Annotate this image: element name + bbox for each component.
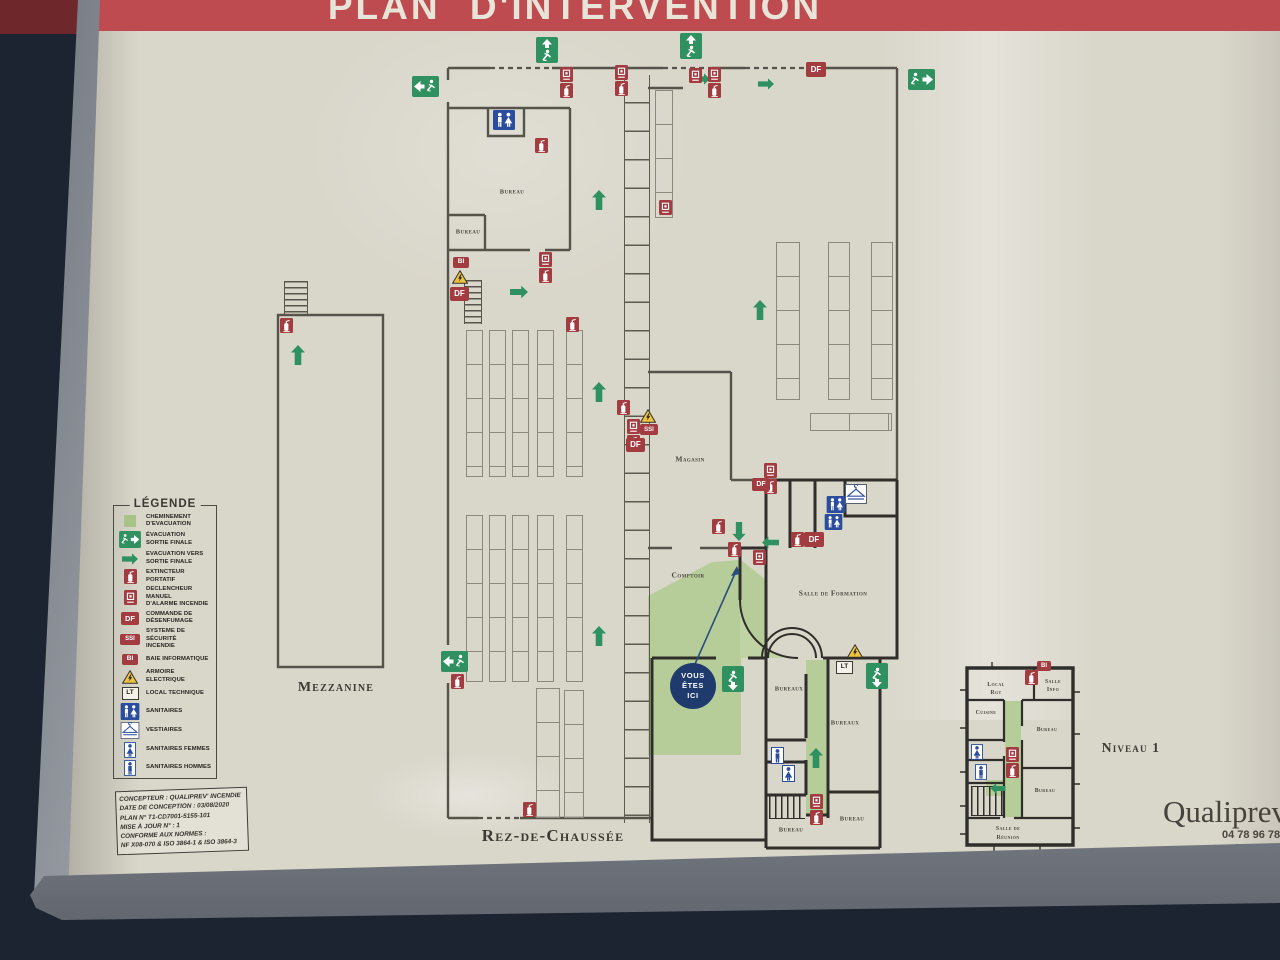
restroom-men-icon [975, 764, 987, 780]
storage-rack [489, 515, 506, 682]
extinguisher-icon [566, 317, 579, 332]
extinguisher-icon [615, 81, 628, 96]
legend-restroom-icon [118, 703, 142, 720]
legend-evacuation-path-swatch [118, 515, 142, 527]
storage-rack [871, 242, 893, 400]
legend-item-label: EVACUATION VERS SORTIE FINALE [146, 551, 203, 566]
evacuation-arrow-icon [762, 536, 779, 549]
stairs-icon [284, 281, 308, 315]
storage-rack [828, 242, 850, 400]
room-label-local-rgt: Local [987, 682, 1004, 688]
exit-sign-icon [722, 664, 744, 694]
niveau1-label: Niveau 1 [1102, 740, 1160, 756]
glare [880, 0, 1100, 720]
df-icon: DF [806, 62, 826, 77]
fire-alarm-icon [689, 68, 702, 83]
storage-rack [566, 515, 583, 682]
room-label-bureau: Bureau [1035, 788, 1056, 794]
legend-item-label: SANITAIRES [146, 708, 182, 715]
legend-item: ARMOIRE ELECTRIQUE [118, 669, 213, 684]
legend-restroom-women-icon [118, 742, 142, 758]
storage-shelf [810, 413, 892, 431]
legend-title: LÉGENDE [130, 498, 201, 510]
floor-label: Rez-de-Chaussée [482, 826, 625, 846]
legend-lt-icon: LT [118, 687, 142, 700]
legend-item: DECLENCHEUR MANUEL D'ALARME INCENDIE [118, 586, 213, 608]
evacuation-arrow-icon [991, 783, 1006, 795]
extinguisher-icon [280, 318, 293, 333]
extinguisher-icon [539, 268, 552, 283]
extinguisher-icon [728, 542, 741, 557]
storage-rack [536, 688, 560, 818]
storage-rack [466, 515, 483, 682]
fire-alarm-icon [708, 67, 721, 82]
restroom-icon [826, 496, 846, 513]
legend-item: CHEMINEMENT D'EVACUATION [118, 514, 213, 529]
alarm-extinguisher-pair [810, 794, 823, 825]
room-label-local-rgt: Rgt [990, 690, 1001, 696]
exit-sign-icon [680, 33, 702, 59]
restroom-men-icon [771, 747, 784, 764]
legend-item: VESTIAIRES [118, 722, 213, 739]
extinguisher-icon [535, 138, 548, 153]
alarm-extinguisher-pair [708, 67, 721, 98]
room-label-bureau: Bureau [1037, 727, 1058, 733]
legend-item-label: SANITAIRES FEMMES [146, 746, 210, 753]
fire-alarm-icon [659, 200, 672, 215]
electric-warning-icon [847, 644, 863, 658]
fire-alarm-icon [560, 67, 573, 82]
stairs-icon [769, 795, 805, 819]
room-label-salle-info: Salle [1045, 679, 1061, 685]
alarm-extinguisher-pair [539, 252, 552, 283]
exit-sign-icon [536, 37, 558, 63]
legend-item: DF COMMANDE DE DÉSENFUMAGE [118, 611, 213, 626]
legend-item: EXTINCTEUR PORTATIF [118, 569, 213, 584]
cloakroom-icon [845, 484, 867, 504]
storage-rack [537, 330, 554, 477]
legend-item: SANITAIRES [118, 703, 213, 720]
evacuation-arrow-icon [758, 78, 774, 90]
legend-fire-alarm-icon [118, 590, 142, 605]
legend-extinguisher-icon [118, 569, 142, 584]
legend-item: ÉVACUATION SORTIE FINALE [118, 531, 213, 548]
evacuation-arrow-icon [592, 382, 606, 402]
lt-icon: LT [836, 661, 853, 674]
extinguisher-icon [791, 532, 804, 547]
alarm-extinguisher-pair [560, 67, 573, 98]
legend-item-label: DECLENCHEUR MANUEL D'ALARME INCENDIE [146, 586, 213, 608]
legend-restroom-men-icon [118, 760, 142, 776]
ssi-icon: SSI [640, 424, 658, 435]
room-label-salle-de-reunion: Salle de [996, 826, 1020, 832]
restroom-women-icon [971, 744, 983, 760]
alarm-extinguisher-pair [615, 65, 628, 96]
legend-item: SANITAIRES FEMMES [118, 742, 213, 758]
evacuation-arrow-icon [753, 300, 767, 320]
legend-item: LT LOCAL TECHNIQUE [118, 686, 213, 700]
legend-item-label: SYSTEME DE SÉCURITÉ INCENDIE [146, 628, 213, 650]
photo-background: PLAN D'INTERVENTION [0, 0, 1280, 960]
legend-electric-warning-icon [118, 670, 142, 684]
exit-sign-icon [908, 69, 935, 90]
storage-rack [776, 242, 800, 400]
you-are-here-line: ICI [687, 691, 698, 701]
fire-alarm-icon [764, 463, 777, 478]
room-label-bureau: Bureau [840, 816, 865, 823]
room-label-bureau: Bureau [500, 189, 525, 196]
legend-df-icon: DF [118, 612, 142, 625]
storage-rack [566, 330, 583, 477]
legend-item-label: ARMOIRE ELECTRIQUE [146, 669, 213, 684]
extinguisher-icon [1006, 763, 1019, 778]
storage-rack [655, 90, 673, 218]
you-are-here-badge: VOUS ÊTES ICI [670, 663, 716, 709]
room-label-bureau: Bureau [456, 229, 481, 236]
legend-item-label: SANITAIRES HOMMES [146, 764, 211, 771]
legend-item: SSI SYSTEME DE SÉCURITÉ INCENDIE [118, 628, 213, 650]
legend-item-label: LOCAL TECHNIQUE [146, 690, 204, 697]
mezzanine-label: Mezzanine [298, 680, 374, 696]
storage-rack [466, 330, 483, 477]
fire-alarm-icon [539, 252, 552, 267]
fire-alarm-icon [1006, 747, 1019, 762]
room-label-bureaux: Bureaux [775, 686, 804, 693]
evacuation-arrow-icon [809, 748, 823, 768]
df-icon: DF [626, 438, 645, 452]
legend-item: EVACUATION VERS SORTIE FINALE [118, 551, 213, 567]
exit-sign-icon [412, 76, 439, 97]
legend-cloakroom-icon [118, 722, 142, 739]
room-label-salle-info: Info [1047, 687, 1059, 693]
restroom-icon [493, 110, 515, 130]
you-are-here-line: VOUS [681, 671, 705, 681]
legend-item-label: BAIE INFORMATIQUE [146, 656, 208, 663]
room-label-bureau: Bureau [779, 827, 804, 834]
bi-icon: BI [453, 257, 469, 268]
evacuation-arrow-icon [291, 345, 305, 365]
legend-ssi-icon: SSI [118, 634, 142, 645]
storage-rack [512, 330, 529, 477]
legend-item: SANITAIRES HOMMES [118, 760, 213, 776]
extinguisher-icon [523, 802, 536, 817]
df-icon: DF [450, 287, 469, 301]
evacuation-arrow-icon [732, 522, 746, 541]
fire-alarm-icon [810, 794, 823, 809]
extinguisher-icon [712, 519, 725, 534]
room-label-cuisine: Cuisine [976, 710, 997, 716]
restroom-icon [824, 514, 843, 530]
electric-warning-icon [640, 409, 656, 423]
room-label-salle-de-formation: Salle de Formation [799, 589, 868, 598]
exit-sign-icon [866, 661, 888, 691]
legend-green-arrow-icon [118, 551, 142, 567]
brand-phone: 04 78 96 78 1 [1222, 829, 1280, 841]
evacuation-arrow-icon [510, 285, 528, 299]
room-label-comptoir: Comptoir [672, 571, 705, 580]
you-are-here-line: ÊTES [682, 681, 704, 691]
intervention-plan-board: PLAN D'INTERVENTION [0, 0, 1280, 960]
storage-rack [512, 515, 529, 682]
legend-item-label: EXTINCTEUR PORTATIF [146, 569, 185, 584]
storage-rack [537, 515, 554, 682]
room-label-magasin: Magasin [675, 455, 704, 464]
extinguisher-icon [617, 400, 630, 415]
room-label-bureaux: Bureaux [831, 720, 860, 727]
brand-logo: Qualiprev [1163, 794, 1280, 830]
fire-alarm-icon [627, 419, 640, 434]
extinguisher-icon [708, 83, 721, 98]
exit-sign-icon [441, 651, 468, 672]
df-icon: DF [752, 478, 770, 491]
extinguisher-icon [451, 674, 464, 689]
extinguisher-icon [560, 83, 573, 98]
shadow [1220, 0, 1280, 900]
fire-alarm-icon [615, 65, 628, 80]
fire-alarm-icon [753, 550, 766, 565]
bi-icon: BI [1037, 661, 1051, 671]
evacuation-arrow-icon [592, 626, 606, 646]
extinguisher-icon [1025, 670, 1038, 685]
restroom-women-icon [782, 765, 795, 782]
legend-exit-sign-icon [118, 531, 142, 548]
legend-item: BI BAIE INFORMATIQUE [118, 653, 213, 667]
legend-item-label: VESTIAIRES [146, 727, 182, 734]
room-label-salle-de-reunion: Réunion [997, 835, 1020, 841]
storage-rack [564, 690, 584, 818]
page-title: PLAN D'INTERVENTION [328, 0, 822, 28]
plan-info-box: CONCEPTEUR : QUALIPREV' INCENDIE DATE DE… [115, 787, 249, 855]
legend: LÉGENDE CHEMINEMENT D'EVACUATION ÉVACUAT… [113, 505, 217, 779]
alarm-extinguisher-pair [1006, 747, 1019, 778]
electric-warning-icon [452, 270, 468, 284]
legend-body: CHEMINEMENT D'EVACUATION ÉVACUATION SORT… [118, 514, 213, 776]
extinguisher-icon [810, 810, 823, 825]
storage-rack [489, 330, 506, 477]
legend-item-label: ÉVACUATION SORTIE FINALE [146, 532, 192, 547]
df-icon: DF [804, 532, 824, 547]
legend-item-label: COMMANDE DE DÉSENFUMAGE [146, 611, 193, 626]
evacuation-arrow-icon [592, 190, 606, 210]
legend-item-label: CHEMINEMENT D'EVACUATION [146, 514, 191, 529]
title-banner: PLAN D'INTERVENTION [0, 0, 1280, 31]
legend-bi-icon: BI [118, 654, 142, 665]
